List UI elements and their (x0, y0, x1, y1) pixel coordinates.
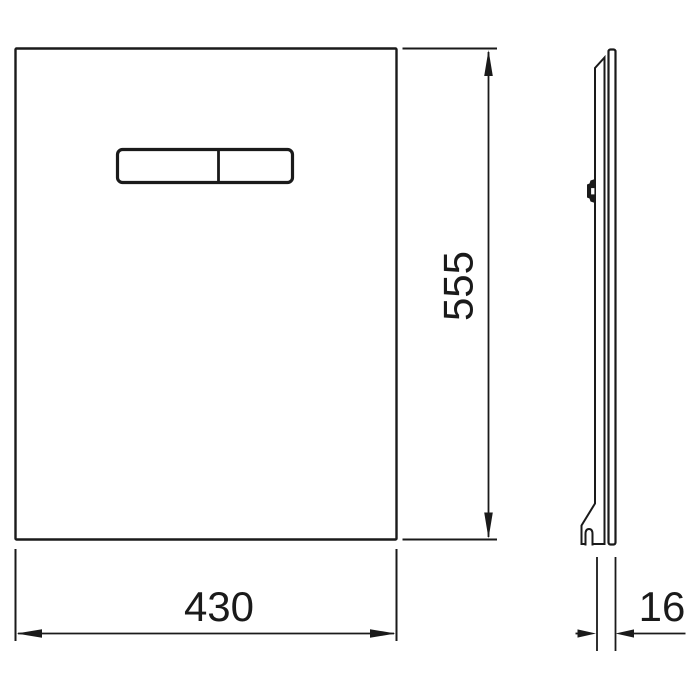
arrowhead-left-icon (616, 629, 635, 637)
arrowhead-right-icon (370, 629, 396, 638)
arrowhead-right-icon (578, 629, 597, 637)
flush-button-frame (118, 150, 293, 183)
front-view (16, 49, 397, 540)
flush-button-group (118, 150, 293, 183)
drawing-svg: 555 430 16 (0, 0, 700, 700)
front-panel-outline (16, 49, 397, 540)
side-view (582, 50, 616, 546)
side-frame-profile (582, 58, 605, 545)
mounting-clip-slot (591, 188, 596, 196)
depth-dimension-label: 16 (639, 583, 686, 630)
arrowhead-up-icon (484, 50, 493, 76)
width-dimension-label: 430 (184, 583, 254, 630)
arrowhead-down-icon (484, 513, 493, 539)
dimension-width: 430 (16, 549, 397, 641)
technical-drawing-canvas: 555 430 16 (0, 0, 700, 700)
dimension-height: 555 (403, 49, 498, 540)
height-dimension-label: 555 (435, 251, 482, 321)
bottom-hook-notch (586, 529, 593, 546)
dimension-depth: 16 (576, 557, 686, 651)
arrowhead-left-icon (17, 629, 43, 638)
glass-panel-profile (609, 50, 616, 545)
